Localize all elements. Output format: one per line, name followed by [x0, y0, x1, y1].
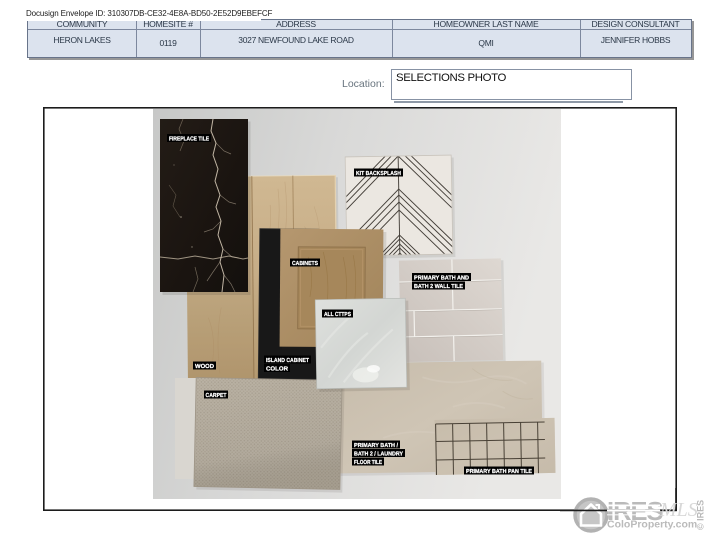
svg-text:FLOOR TILE: FLOOR TILE	[354, 459, 382, 466]
svg-text:BATH 2 WALL TILE: BATH 2 WALL TILE	[414, 283, 463, 290]
svg-text:CABINETS: CABINETS	[292, 260, 318, 267]
svg-text:FIREPLACE TILE: FIREPLACE TILE	[169, 135, 209, 142]
svg-text:KIT BACKSPLASH: KIT BACKSPLASH	[356, 170, 401, 177]
svg-text:PRIMARY BATH /: PRIMARY BATH /	[354, 442, 398, 449]
svg-text:PRIMARY BATH AND: PRIMARY BATH AND	[414, 274, 469, 281]
svg-text:CARPET: CARPET	[206, 392, 227, 399]
svg-text:BATH 2 / LAUNDRY: BATH 2 / LAUNDRY	[354, 450, 403, 457]
svg-text:WOOD: WOOD	[195, 363, 214, 370]
svg-text:ColoProperty.com: ColoProperty.com	[607, 519, 697, 531]
svg-text:COLOR: COLOR	[266, 365, 289, 372]
svg-text:ISLAND CABINET: ISLAND CABINET	[266, 357, 309, 364]
svg-text:© IRES: © IRES	[696, 500, 706, 530]
svg-text:PRIMARY BATH PAN TILE: PRIMARY BATH PAN TILE	[466, 468, 532, 475]
svg-text:ALL CTTPS: ALL CTTPS	[324, 311, 351, 318]
